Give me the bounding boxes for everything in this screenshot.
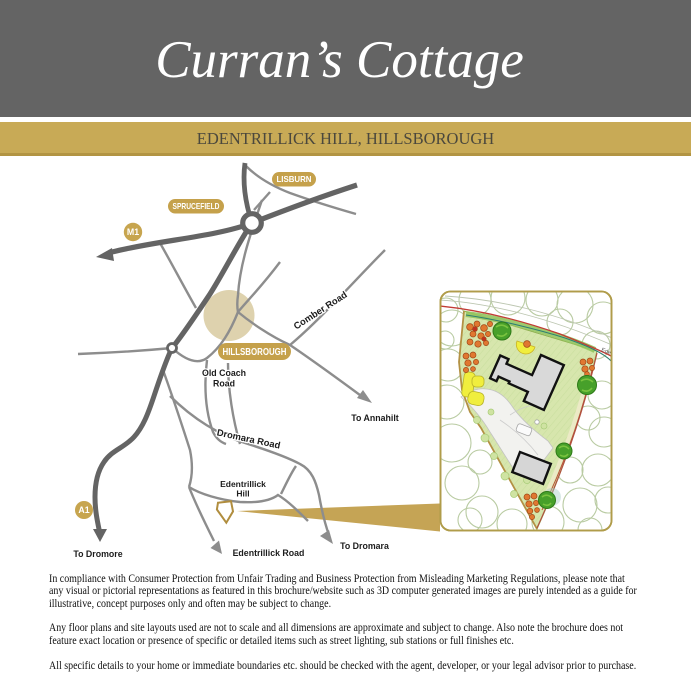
svg-text:HILLSBOROUGH: HILLSBOROUGH [223,347,287,358]
svg-text:To Annahilt: To Annahilt [351,413,398,423]
svg-text:Comber Road: Comber Road [291,289,349,332]
svg-text:To Dromore: To Dromore [73,549,122,559]
svg-text:M1: M1 [127,227,139,237]
svg-text:SPRUCEFIELD: SPRUCEFIELD [173,201,220,211]
svg-text:Edentrillick Road: Edentrillick Road [233,548,305,558]
svg-text:LISBURN: LISBURN [277,174,312,184]
svg-text:To Dromara: To Dromara [340,541,389,551]
svg-text:Hill: Hill [236,489,249,499]
svg-text:Road: Road [213,379,235,389]
svg-text:Edentrillick: Edentrillick [220,479,266,489]
svg-text:Dromara Road: Dromara Road [216,426,282,450]
svg-text:Old Coach: Old Coach [202,368,246,378]
svg-text:A1: A1 [78,505,89,515]
